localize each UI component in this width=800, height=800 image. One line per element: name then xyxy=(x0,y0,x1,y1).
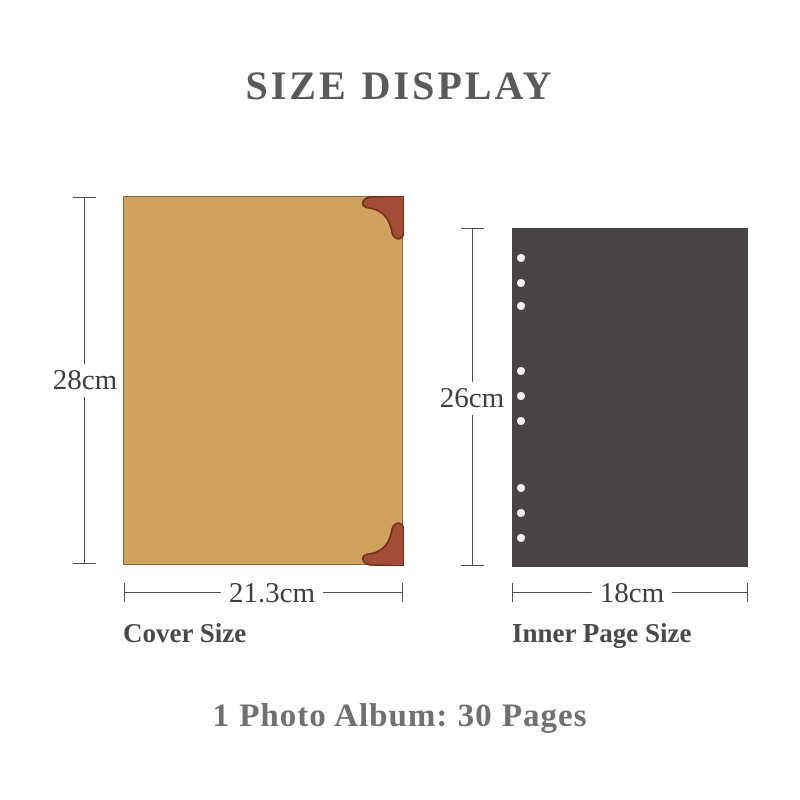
album-cover-shape xyxy=(123,196,403,565)
cover-height-label: 28cm xyxy=(45,364,125,397)
binder-hole xyxy=(517,534,525,542)
page-title: SIZE DISPLAY xyxy=(0,62,800,109)
corner-protector-bottom-right-icon xyxy=(358,518,404,566)
dimension-cap xyxy=(73,563,96,564)
dimension-cap xyxy=(124,583,125,602)
corner-protector-top-right-icon xyxy=(358,196,404,244)
binder-hole xyxy=(517,417,525,425)
binder-hole xyxy=(517,279,525,287)
page-width-label: 18cm xyxy=(592,577,672,610)
binder-hole xyxy=(517,302,525,310)
dimension-cap xyxy=(402,583,403,602)
binder-hole xyxy=(517,392,525,400)
binder-hole xyxy=(517,367,525,375)
album-pages-note: 1 Photo Album: 30 Pages xyxy=(0,698,800,735)
binder-hole xyxy=(517,484,525,492)
binder-hole xyxy=(517,509,525,517)
dimension-cap xyxy=(747,583,748,602)
dimension-cap xyxy=(461,228,484,229)
cover-caption: Cover Size xyxy=(123,618,246,649)
page-height-label: 26cm xyxy=(432,382,512,415)
cover-width-label: 21.3cm xyxy=(221,577,323,610)
dimension-cap xyxy=(512,583,513,602)
inner-page-shape xyxy=(512,228,748,567)
binder-hole xyxy=(517,254,525,262)
inner-page-caption: Inner Page Size xyxy=(512,618,691,649)
size-display-diagram: SIZE DISPLAY 28cm 21.3cm Cover Size 26cm xyxy=(0,0,800,800)
dimension-cap xyxy=(461,565,484,566)
dimension-cap xyxy=(73,197,96,198)
